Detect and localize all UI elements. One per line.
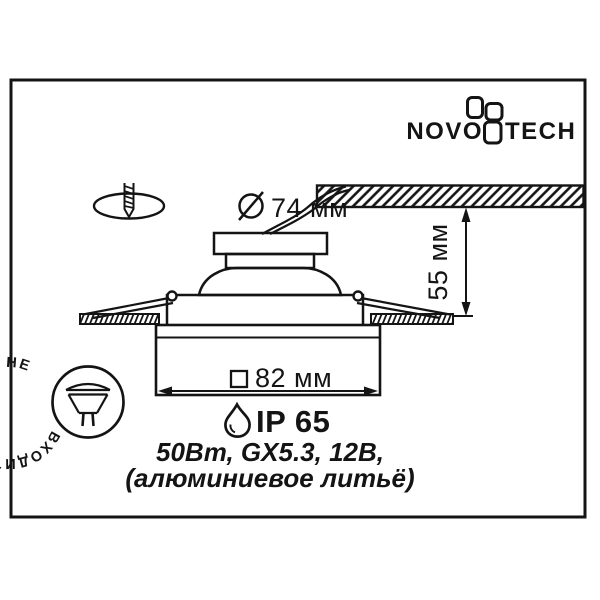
- logo-text-tech: TECH: [505, 118, 576, 145]
- ip-rating-label: IP 65: [256, 404, 330, 439]
- ceiling-section: [317, 186, 584, 208]
- arrowhead-down: [462, 302, 471, 316]
- terminal-block: [214, 233, 327, 254]
- ceiling-edge-right: [371, 314, 453, 324]
- trim-width-label: 82 мм: [255, 363, 332, 393]
- holder-neck: [226, 254, 314, 268]
- mounting-plate: [167, 295, 363, 325]
- ceiling-edge-left: [80, 314, 159, 324]
- housing-bell: [199, 268, 341, 295]
- square-symbol-icon: [231, 371, 247, 387]
- recess-height-label: 55 мм: [423, 223, 453, 300]
- width-dimension: 82 мм: [158, 363, 378, 396]
- spec-line-2: (алюминиевое литьё): [125, 463, 414, 493]
- height-dimension: 55 мм: [423, 208, 473, 317]
- drill-icon: [94, 183, 164, 219]
- logo-text-novo: NOVO: [406, 118, 483, 145]
- diameter-icon: [239, 192, 263, 220]
- product-spec-sheet: NOVO TECH 74 мм: [0, 0, 600, 600]
- lamp-not-included-stamp: ВХОДИТ В КОМПЛЕКТ НЕ: [0, 355, 124, 471]
- stamp-circle: [53, 367, 124, 438]
- cutout-note: 74 мм: [94, 183, 348, 223]
- arrowhead-up: [462, 208, 471, 223]
- water-drop-icon: [225, 405, 249, 437]
- mr16-lamp-icon: [66, 384, 110, 426]
- novotech-logo: NOVO TECH: [406, 98, 576, 146]
- ip-rating: IP 65: [225, 404, 330, 439]
- diagram-canvas: NOVO TECH 74 мм: [0, 0, 600, 600]
